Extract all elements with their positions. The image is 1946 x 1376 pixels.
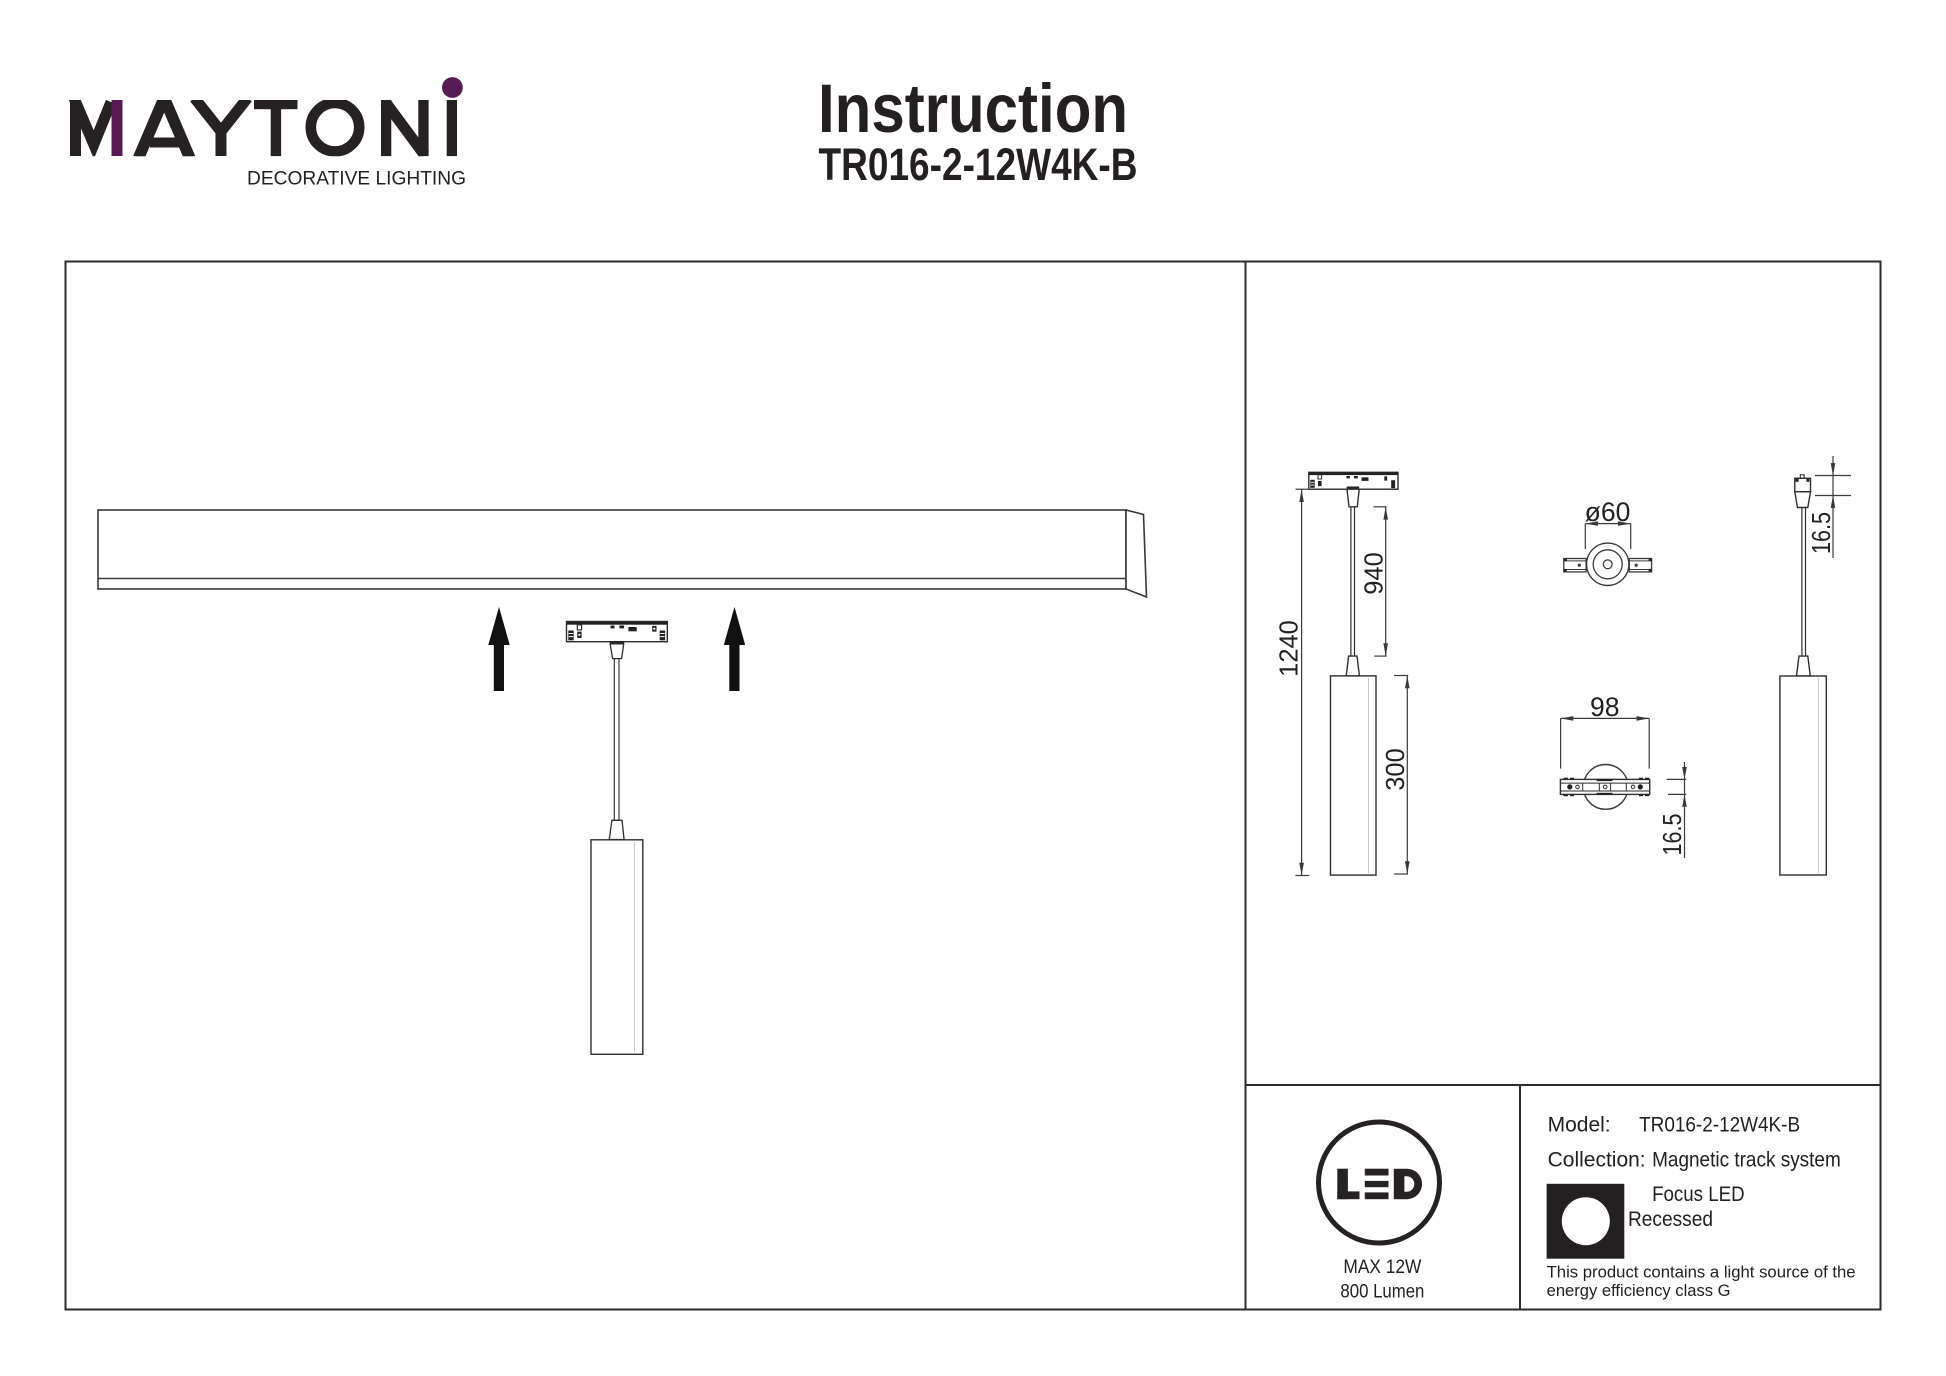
svg-text:Recessed: Recessed — [1628, 1208, 1713, 1231]
svg-text:TR016-2-12W4K-B: TR016-2-12W4K-B — [1639, 1114, 1800, 1137]
svg-text:300: 300 — [1382, 748, 1410, 791]
svg-text:Focus LED: Focus LED — [1652, 1183, 1745, 1206]
svg-text:energy efficiency class G: energy efficiency class G — [1547, 1281, 1731, 1300]
svg-text:MAX 12W: MAX 12W — [1343, 1256, 1422, 1278]
svg-text:Instruction: Instruction — [818, 70, 1128, 147]
svg-text:1240: 1240 — [1276, 620, 1304, 677]
svg-text:ø60: ø60 — [1585, 497, 1631, 527]
svg-text:800 Lumen: 800 Lumen — [1340, 1281, 1424, 1303]
svg-text:Magnetic track system: Magnetic track system — [1652, 1149, 1841, 1172]
svg-text:98: 98 — [1590, 692, 1619, 722]
svg-text:Collection:: Collection: — [1548, 1149, 1646, 1172]
svg-text:16.5: 16.5 — [1808, 512, 1836, 554]
svg-text:Model:: Model: — [1548, 1114, 1611, 1137]
svg-text:16.5: 16.5 — [1659, 814, 1687, 856]
svg-text:This product contains a light: This product contains a light source of … — [1547, 1263, 1856, 1282]
svg-text:TR016-2-12W4K-B: TR016-2-12W4K-B — [819, 139, 1138, 190]
svg-text:DECORATIVE LIGHTING: DECORATIVE LIGHTING — [247, 169, 466, 190]
svg-text:940: 940 — [1361, 552, 1389, 595]
